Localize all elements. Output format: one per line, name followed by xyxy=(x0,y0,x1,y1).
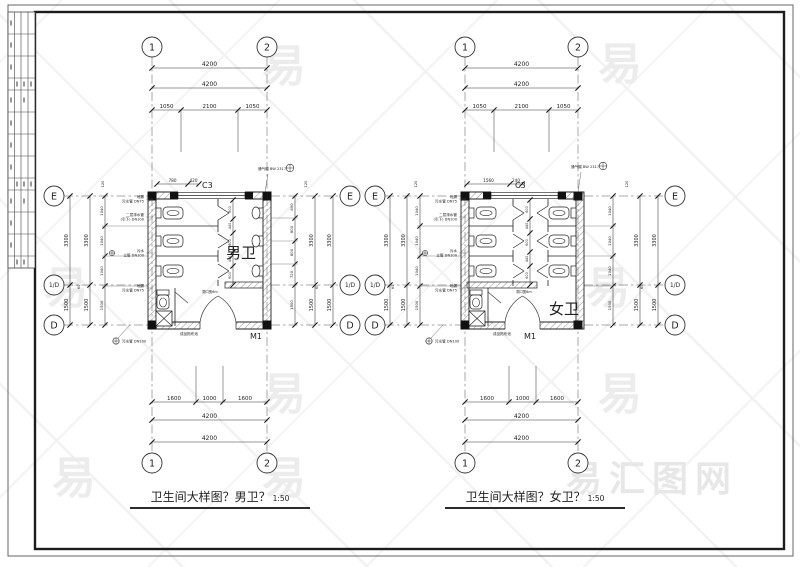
door-arc xyxy=(505,296,523,322)
svg-text:立管 DN100: 立管 DN100 xyxy=(123,253,144,258)
svg-text:女卫: 女卫 xyxy=(549,300,579,318)
svg-text:E: E xyxy=(372,191,378,202)
column xyxy=(263,192,272,201)
svg-text:1500: 1500 xyxy=(64,299,70,312)
svg-text:M1: M1 xyxy=(250,332,262,341)
svg-text:2: 2 xyxy=(575,458,581,469)
svg-text:600: 600 xyxy=(228,206,232,212)
svg-text:二层排水管: 二层排水管 xyxy=(126,212,144,217)
svg-text:(引下) DN100: (引下) DN100 xyxy=(121,217,145,222)
plan-men: 1122EE1/D1/DDD42004200105021001050160010… xyxy=(44,37,360,473)
svg-text:420: 420 xyxy=(190,178,198,183)
svg-text:地漏: 地漏 xyxy=(450,194,458,199)
svg-text:洞口宽6m: 洞口宽6m xyxy=(202,289,218,294)
svg-text:1500: 1500 xyxy=(652,299,658,312)
svg-text:4200: 4200 xyxy=(514,61,529,68)
svg-text:1500: 1500 xyxy=(384,299,390,312)
svg-text:120: 120 xyxy=(304,180,308,188)
squat-toilet xyxy=(163,207,183,219)
svg-text:120: 120 xyxy=(414,180,418,188)
title-text: 卫生间大样图？男卫？ xyxy=(151,490,271,504)
svg-text:E: E xyxy=(347,191,353,202)
svg-text:60: 60 xyxy=(391,285,395,289)
svg-text:120: 120 xyxy=(101,180,105,188)
svg-text:污水管 DN75: 污水管 DN75 xyxy=(435,288,457,293)
svg-text:通气帽 BW 2317: 通气帽 BW 2317 xyxy=(571,164,599,169)
svg-text:1040: 1040 xyxy=(607,236,612,246)
svg-text:1050: 1050 xyxy=(246,104,260,110)
svg-text:污水: 污水 xyxy=(450,248,458,253)
svg-text:3300: 3300 xyxy=(634,234,640,247)
svg-text:1000: 1000 xyxy=(516,396,530,402)
svg-text:3300: 3300 xyxy=(401,234,407,247)
svg-text:1/D: 1/D xyxy=(670,283,681,289)
door-arc xyxy=(218,296,236,322)
corner-fixtures xyxy=(156,288,188,326)
svg-text:C3: C3 xyxy=(202,181,213,190)
svg-text:1500: 1500 xyxy=(309,299,315,312)
svg-text:2: 2 xyxy=(264,42,270,53)
svg-text:3300: 3300 xyxy=(64,234,70,247)
svg-text:E: E xyxy=(672,191,678,202)
svg-text:1600: 1600 xyxy=(550,396,564,402)
svg-text:60: 60 xyxy=(315,285,319,289)
svg-text:720: 720 xyxy=(289,270,294,278)
svg-text:1040: 1040 xyxy=(99,266,104,276)
title-block-strip xyxy=(8,12,35,268)
cad-drawing: 1122EE1/D1/DDD42004200105021001050160010… xyxy=(0,0,800,567)
svg-text:污水管 DN100: 污水管 DN100 xyxy=(435,339,460,344)
svg-text:4200: 4200 xyxy=(202,435,217,442)
svg-text:800: 800 xyxy=(289,248,294,256)
squat-toilet xyxy=(163,265,183,277)
svg-text:洞口宽6m: 洞口宽6m xyxy=(516,289,532,294)
interior-wall xyxy=(467,282,537,288)
column xyxy=(574,192,583,201)
svg-text:780: 780 xyxy=(169,178,177,183)
svg-text:800: 800 xyxy=(289,225,294,233)
door-opening xyxy=(200,321,236,331)
svg-text:地漏: 地漏 xyxy=(137,194,145,199)
svg-text:1040: 1040 xyxy=(99,236,104,246)
urinals xyxy=(252,207,263,277)
squat-toilet xyxy=(163,235,183,247)
svg-text:M1: M1 xyxy=(524,332,536,341)
svg-text:600: 600 xyxy=(289,203,294,211)
svg-text:120: 120 xyxy=(625,180,629,188)
drawing-sheet: 易 易 易 易 易 易 易 易 易汇图网 1122EE1/D1/DDD42004… xyxy=(0,0,800,567)
svg-text:60: 60 xyxy=(640,285,644,289)
svg-text:D: D xyxy=(671,320,678,331)
svg-text:立管 DN100: 立管 DN100 xyxy=(436,253,457,258)
svg-text:1040: 1040 xyxy=(607,266,612,276)
title-text: 卫生间大样图？女卫？ xyxy=(466,490,586,504)
column xyxy=(574,321,583,330)
svg-text:4200: 4200 xyxy=(514,435,529,442)
svg-text:1500: 1500 xyxy=(414,300,419,310)
door-opening xyxy=(505,321,540,331)
column xyxy=(461,321,470,330)
svg-text:(引下) DN100: (引下) DN100 xyxy=(434,217,458,222)
squat-toilet xyxy=(549,235,569,247)
svg-text:污水: 污水 xyxy=(137,248,145,253)
svg-text:1600: 1600 xyxy=(480,396,494,402)
svg-text:4200: 4200 xyxy=(202,81,217,88)
svg-text:污水管 DN75: 污水管 DN75 xyxy=(435,199,457,204)
svg-text:成品拖布池: 成品拖布池 xyxy=(180,331,198,336)
corner-fixtures xyxy=(469,288,501,326)
svg-text:2100: 2100 xyxy=(515,104,529,110)
drawing-title-women: 卫生间大样图？女卫？1:50 xyxy=(445,486,625,509)
svg-text:1040: 1040 xyxy=(414,266,419,276)
svg-text:1/D: 1/D xyxy=(345,283,356,289)
urinal xyxy=(252,265,260,277)
svg-text:1: 1 xyxy=(149,458,155,469)
squat-toilet xyxy=(549,265,569,277)
column xyxy=(263,321,272,330)
svg-text:3300: 3300 xyxy=(84,234,90,247)
svg-text:污水管 DN100: 污水管 DN100 xyxy=(122,339,147,344)
svg-text:D: D xyxy=(371,320,378,331)
svg-text:1500: 1500 xyxy=(634,299,640,312)
svg-text:4200: 4200 xyxy=(202,61,217,68)
svg-text:地漏: 地漏 xyxy=(137,283,145,288)
door-arc xyxy=(200,296,218,322)
svg-text:1: 1 xyxy=(462,458,468,469)
svg-text:2: 2 xyxy=(575,42,581,53)
svg-text:1050: 1050 xyxy=(160,104,174,110)
svg-text:二层排水管: 二层排水管 xyxy=(439,212,457,217)
svg-text:1: 1 xyxy=(462,42,468,53)
stall-row xyxy=(537,199,576,286)
svg-text:地漏: 地漏 xyxy=(450,283,458,288)
svg-text:2100: 2100 xyxy=(203,104,217,110)
svg-text:4200: 4200 xyxy=(202,413,217,420)
svg-text:440: 440 xyxy=(525,223,529,229)
svg-text:污水管 DN75: 污水管 DN75 xyxy=(122,288,144,293)
svg-text:1500: 1500 xyxy=(289,300,294,310)
svg-text:600: 600 xyxy=(525,239,529,245)
svg-text:1500: 1500 xyxy=(401,299,407,312)
svg-text:1: 1 xyxy=(149,42,155,53)
svg-text:1600: 1600 xyxy=(167,396,181,402)
svg-text:1040: 1040 xyxy=(414,206,419,216)
svg-text:通气帽 BW 2317: 通气帽 BW 2317 xyxy=(258,166,286,171)
svg-text:440: 440 xyxy=(228,223,232,229)
svg-text:成品拖布池: 成品拖布池 xyxy=(493,331,511,336)
door-arc xyxy=(523,296,541,322)
svg-text:1050: 1050 xyxy=(557,104,571,110)
svg-text:1000: 1000 xyxy=(203,396,217,402)
svg-text:1040: 1040 xyxy=(414,236,419,246)
svg-text:1040: 1040 xyxy=(607,206,612,216)
stall-row xyxy=(469,199,524,286)
svg-text:1500: 1500 xyxy=(84,299,90,312)
svg-text:1050: 1050 xyxy=(473,104,487,110)
svg-text:4200: 4200 xyxy=(514,81,529,88)
svg-text:600: 600 xyxy=(525,272,529,278)
svg-text:600: 600 xyxy=(228,272,232,278)
title-scale: 1:50 xyxy=(588,494,605,503)
svg-text:60: 60 xyxy=(77,285,81,289)
svg-text:1500: 1500 xyxy=(327,299,333,312)
svg-text:D: D xyxy=(346,320,353,331)
title-scale: 1:50 xyxy=(273,494,290,503)
svg-text:440: 440 xyxy=(525,256,529,262)
svg-text:3300: 3300 xyxy=(384,234,390,247)
svg-text:男卫: 男卫 xyxy=(226,244,256,262)
svg-text:E: E xyxy=(51,191,57,202)
svg-text:3300: 3300 xyxy=(327,234,333,247)
svg-text:3300: 3300 xyxy=(652,234,658,247)
svg-text:2: 2 xyxy=(264,458,270,469)
svg-text:1/D: 1/D xyxy=(370,283,381,289)
squat-toilet xyxy=(476,207,496,219)
svg-text:600: 600 xyxy=(525,206,529,212)
urinal xyxy=(252,207,260,219)
svg-text:4200: 4200 xyxy=(514,413,529,420)
svg-text:1500: 1500 xyxy=(99,300,104,310)
svg-text:D: D xyxy=(50,320,57,331)
svg-text:1/D: 1/D xyxy=(49,283,60,289)
svg-text:3300: 3300 xyxy=(309,234,315,247)
svg-text:1040: 1040 xyxy=(99,206,104,216)
svg-text:1560: 1560 xyxy=(483,178,494,183)
plan-women: 1122EE1/D1/DDD42004200105021001050160010… xyxy=(365,37,685,473)
squat-toilet xyxy=(476,265,496,277)
column xyxy=(148,321,157,330)
svg-text:1600: 1600 xyxy=(238,396,252,402)
stall-row xyxy=(156,199,229,286)
svg-text:污水管 DN75: 污水管 DN75 xyxy=(122,199,144,204)
drawing-title-men: 卫生间大样图？男卫？1:50 xyxy=(130,486,310,509)
squat-toilet xyxy=(549,207,569,219)
squat-toilet xyxy=(476,235,496,247)
svg-text:1500: 1500 xyxy=(607,300,612,310)
svg-text:C3: C3 xyxy=(515,181,526,190)
